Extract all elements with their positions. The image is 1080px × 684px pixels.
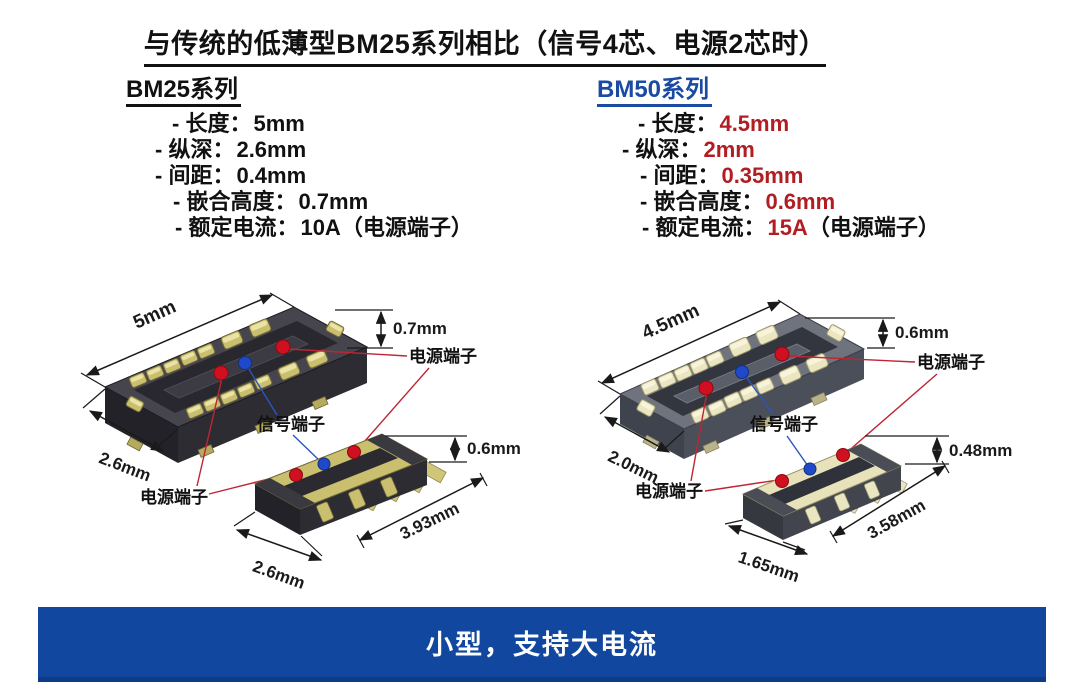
- power-terminal-dot: [776, 475, 789, 488]
- spec-value: 0.4mm: [234, 163, 306, 188]
- bm50-plug-depth-label: 1.65mm: [736, 548, 802, 587]
- bm50-spec-pitch: - 间距：0.35mm: [640, 163, 940, 189]
- bm50-spec-depth: - 纵深：2mm: [622, 137, 940, 163]
- bottom-banner: 小型，支持大电流: [38, 607, 1046, 682]
- bm25-spec-depth: - 纵深：2.6mm: [155, 137, 473, 163]
- bm25-spec-rated-current: - 额定电流：10A（电源端子）: [175, 215, 473, 241]
- bm50-power-terminal-label-top: 电源端子: [917, 352, 985, 372]
- signal-terminal-dot: [736, 366, 749, 379]
- bm50-spec-panel: BM50系列 - 长度：4.5mm - 纵深：2mm - 间距：0.35mm -…: [597, 76, 940, 241]
- spec-label: - 嵌合高度：: [640, 189, 763, 214]
- bm25-signal-terminal-label: 信号端子: [257, 414, 325, 434]
- spec-label: - 额定电流：: [642, 215, 765, 240]
- bm50-spec-rated-current: - 额定电流：15A（电源端子）: [642, 215, 940, 241]
- spec-value: 5mm: [251, 111, 304, 136]
- bm25-plug-height-label: 0.6mm: [467, 439, 521, 458]
- page-title: 与传统的低薄型BM25系列相比（信号4芯、电源2芯时）: [144, 22, 827, 67]
- spec-value: 0.35mm: [719, 163, 803, 188]
- spec-label: - 长度：: [172, 111, 251, 136]
- spec-label: - 长度：: [638, 111, 717, 136]
- bm25-receptacle-depth-label: 2.6mm: [96, 448, 153, 485]
- bm50-plug-height-label: 0.48mm: [949, 441, 1012, 460]
- power-terminal-dot: [837, 449, 850, 462]
- spec-suffix: （电源端子）: [808, 215, 940, 240]
- bm25-plug-depth-label: 2.6mm: [250, 557, 307, 593]
- bm50-spec-mating-height: - 嵌合高度：0.6mm: [640, 189, 940, 215]
- power-terminal-dot: [214, 366, 228, 380]
- spec-suffix: （电源端子）: [341, 215, 473, 240]
- bm25-heading: BM25系列: [126, 76, 241, 107]
- banner-text: 小型，支持大电流: [426, 623, 658, 662]
- spec-label: - 间距：: [640, 163, 719, 188]
- bm50-receptacle-length-label: 4.5mm: [639, 300, 703, 344]
- bm50-spec-length: - 长度：4.5mm: [638, 111, 940, 137]
- spec-value: 0.6mm: [763, 189, 835, 214]
- signal-terminal-dot: [239, 357, 252, 370]
- bm25-power-terminal-label-top: 电源端子: [409, 346, 477, 366]
- power-terminal-dot: [348, 446, 361, 459]
- spec-value: 4.5mm: [717, 111, 789, 136]
- title-wrap: 与传统的低薄型BM25系列相比（信号4芯、电源2芯时）: [0, 22, 970, 67]
- spec-value: 10A: [298, 215, 340, 240]
- power-terminal-dot: [290, 469, 303, 482]
- bm50-receptacle-height-label: 0.6mm: [895, 323, 949, 342]
- power-terminal-dot: [775, 347, 789, 361]
- bm25-spec-pitch: - 间距：0.4mm: [155, 163, 473, 189]
- bm25-spec-panel: BM25系列 - 长度：5mm - 纵深：2.6mm - 间距：0.4mm - …: [126, 76, 473, 241]
- bm25-power-terminal-label-bottom: 电源端子: [140, 487, 208, 507]
- bm50-power-terminal-label-bottom: 电源端子: [635, 481, 703, 501]
- spec-label: - 纵深：: [155, 137, 234, 162]
- bm25-receptacle-length-label: 5mm: [130, 296, 179, 333]
- bm50-heading: BM50系列: [597, 76, 712, 107]
- signal-terminal-dot: [318, 458, 330, 470]
- spec-value: 2.6mm: [234, 137, 306, 162]
- bm25-spec-mating-height: - 嵌合高度：0.7mm: [173, 189, 473, 215]
- bm25-spec-length: - 长度：5mm: [172, 111, 473, 137]
- bm50-plug-length-label: 3.58mm: [864, 496, 929, 543]
- bm25-figure: 5mm: [35, 272, 535, 602]
- signal-terminal-dot: [804, 463, 816, 475]
- spec-value: 2mm: [701, 137, 754, 162]
- spec-label: - 纵深：: [622, 137, 701, 162]
- bm50-figure: 4.5mm: [565, 272, 1065, 602]
- bm50-signal-terminal-label: 信号端子: [750, 414, 818, 434]
- power-terminal-dot: [699, 381, 713, 395]
- spec-value: 15A: [765, 215, 807, 240]
- spec-label: - 间距：: [155, 163, 234, 188]
- bm25-receptacle-height-label: 0.7mm: [393, 319, 447, 338]
- spec-label: - 嵌合高度：: [173, 189, 296, 214]
- spec-value: 0.7mm: [296, 189, 368, 214]
- power-terminal-dot: [276, 340, 290, 354]
- spec-label: - 额定电流：: [175, 215, 298, 240]
